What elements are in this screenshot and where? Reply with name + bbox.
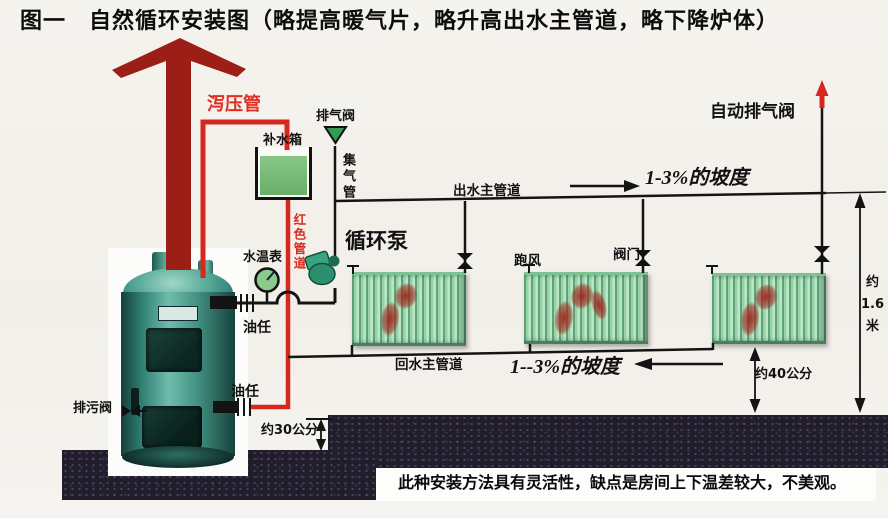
label-thermometer: 水温表	[243, 251, 282, 266]
label-union-top: 油任	[243, 320, 271, 336]
label-circulation-pump: 循环泵	[345, 229, 408, 253]
label-dim-30cm: 约30公分	[261, 424, 318, 439]
footer-note: 此种安装方法具有灵活性，缺点是房间上下温差较大，不美观。	[398, 474, 846, 492]
slope-arrow-top-icon	[570, 180, 640, 192]
label-air-collector-pipe: 集气管	[339, 153, 354, 201]
label-union-bottom: 油任	[231, 384, 259, 400]
union-bottom-icon	[238, 398, 250, 416]
label-valve: 阀门	[613, 248, 640, 264]
auto-exhaust-arrow-icon	[816, 80, 829, 108]
label-drain-valve: 排污阀	[73, 402, 112, 417]
label-air-vent: 跑风	[514, 254, 541, 270]
piping-overlay	[0, 0, 888, 518]
exhaust-valve-funnel-icon	[325, 127, 346, 143]
thermometer-icon	[256, 269, 279, 304]
diagram-canvas: 图一 自然循环安装图（略提高暖气片，略升高出水主管道，略下降炉体） 泻压管 排气…	[0, 0, 888, 518]
label-dim-height-b: 1.6	[861, 298, 884, 313]
flue-draft-arrow-icon	[112, 38, 246, 270]
label-dim-height-a: 约	[866, 276, 879, 291]
label-slope-bottom: 1--3%的坡度	[510, 356, 620, 379]
label-dim-40cm: 约40公分	[755, 368, 812, 383]
boiler-outlet-stub	[210, 296, 237, 309]
label-makeup-tank: 补水箱	[263, 134, 302, 149]
slope-arrow-bottom-icon	[634, 358, 723, 370]
label-dim-height-c: 米	[866, 320, 879, 335]
boiler-return-stub	[213, 401, 238, 413]
boiler-supply-pipe	[236, 288, 335, 303]
circulation-pump-icon	[304, 251, 339, 285]
drain-valve-icon	[122, 405, 147, 417]
label-return-main: 回水主管道	[395, 358, 463, 374]
label-auto-exhaust-valve: 自动排气阀	[710, 103, 795, 123]
label-supply-main: 出水主管道	[453, 184, 521, 200]
valve-icon-1	[457, 253, 473, 269]
label-exhaust-valve: 排气阀	[316, 110, 355, 125]
label-red-pipe: 红色管道	[291, 213, 305, 271]
diagram-title: 图一 自然循环安装图（略提高暖气片，略升高出水主管道，略下降炉体）	[20, 9, 779, 34]
supply-main-pipe	[335, 193, 826, 201]
label-slope-top: 1-3%的坡度	[645, 167, 748, 190]
label-relief-pipe: 泻压管	[207, 95, 261, 116]
valve-icon-3	[814, 246, 830, 262]
dim-reference-tick-top	[826, 192, 886, 193]
